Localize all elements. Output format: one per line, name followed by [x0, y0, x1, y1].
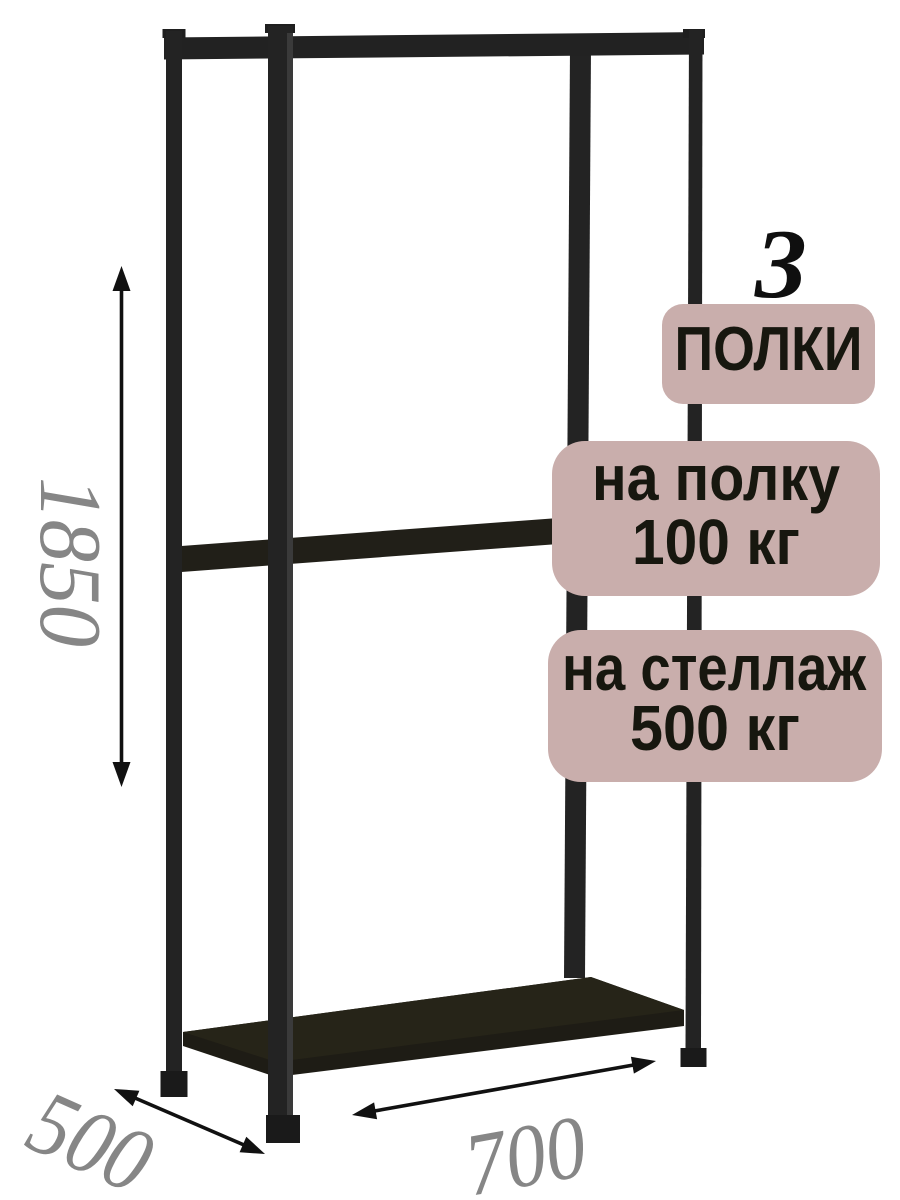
svg-text:на полку: на полку [592, 442, 840, 514]
svg-text:100 кг: 100 кг [632, 506, 800, 578]
svg-text:1850: 1850 [21, 477, 118, 647]
svg-text:3: 3 [754, 210, 807, 319]
svg-text:ПОЛКИ: ПОЛКИ [675, 315, 863, 384]
svg-text:500 кг: 500 кг [630, 692, 800, 764]
